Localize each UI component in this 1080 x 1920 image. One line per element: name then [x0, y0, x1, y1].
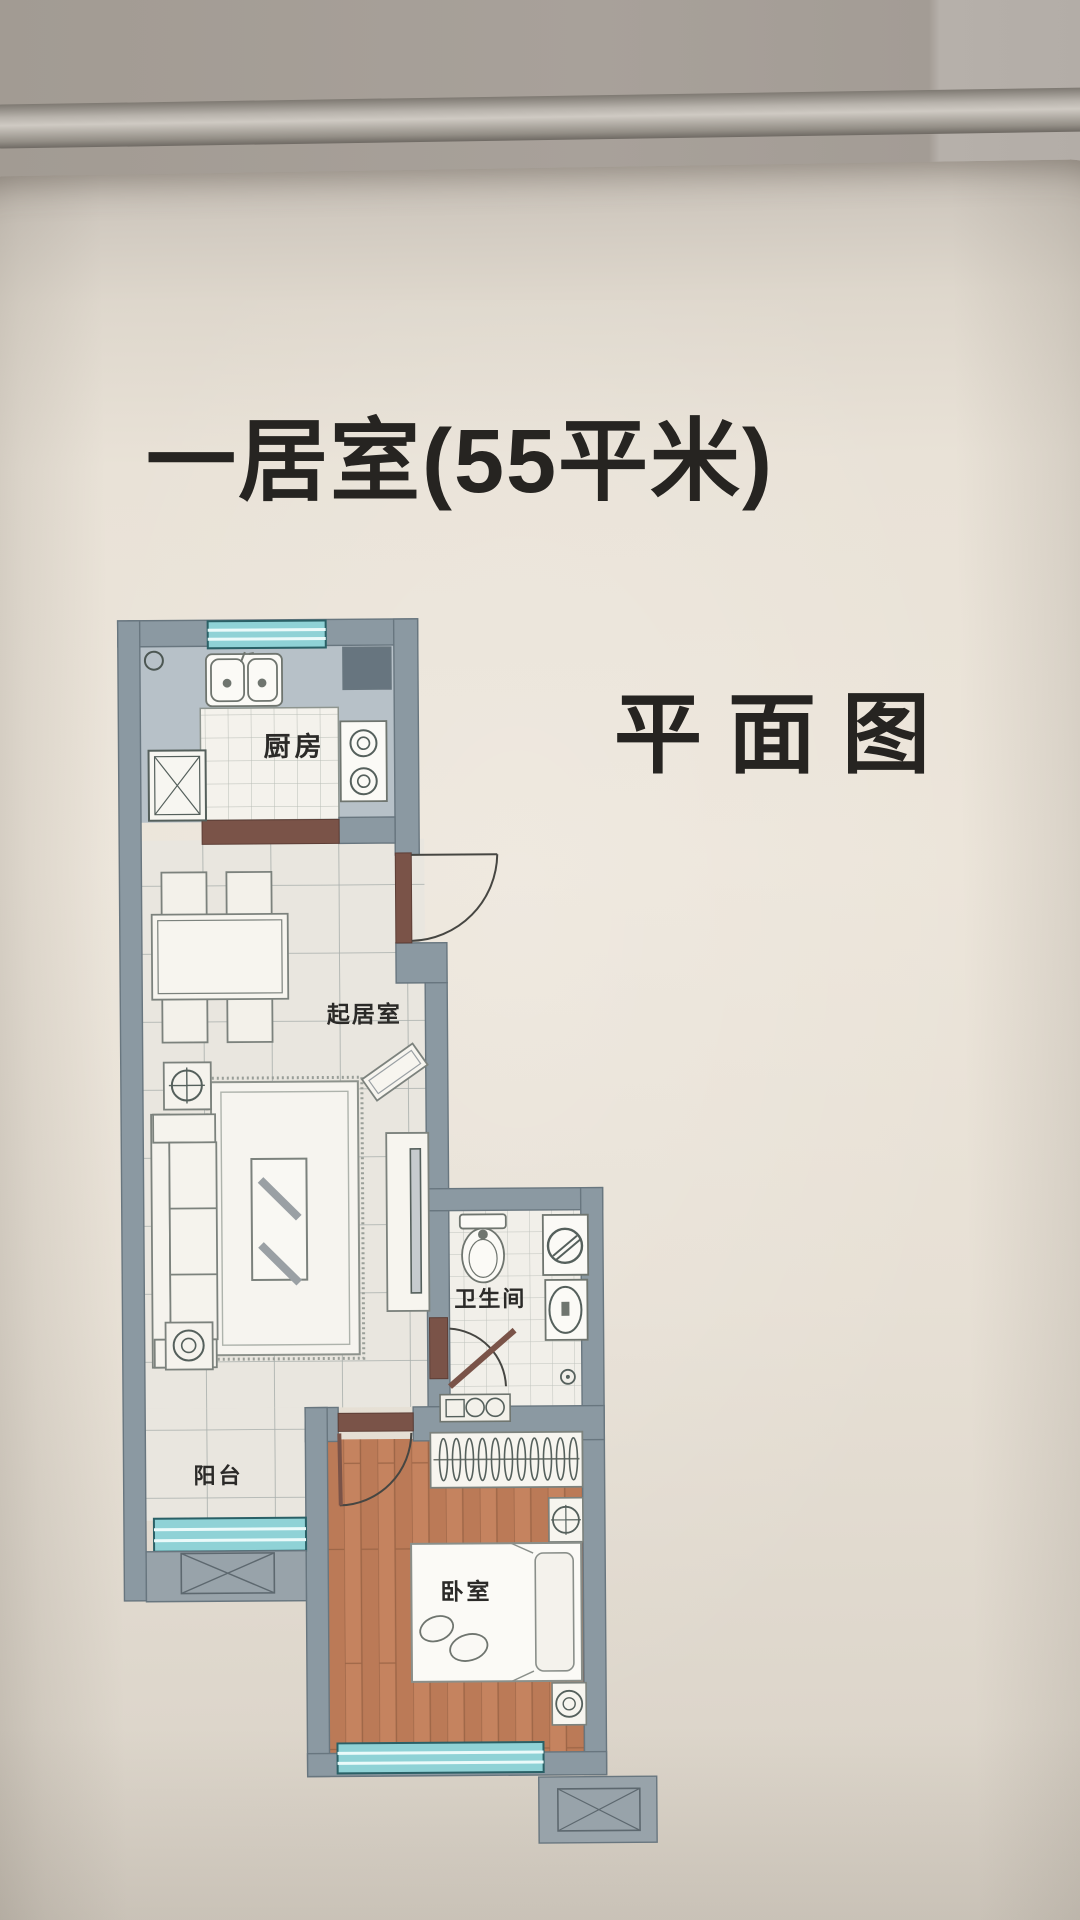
- wardrobe: [430, 1432, 582, 1488]
- floor-plan-drawing: 厨房 起居室 卫生间 阳台 卧室: [0, 0, 1080, 1920]
- balcony-ac-platform: [146, 1551, 306, 1602]
- shower-shelf: [440, 1394, 510, 1421]
- toilet: [460, 1214, 506, 1282]
- bathroom-label: 卫生间: [454, 1286, 526, 1312]
- tv-cabinet: [386, 1133, 429, 1311]
- kitchen-label: 厨房: [263, 731, 325, 761]
- balcony-label: 阳台: [193, 1463, 243, 1488]
- bed: [411, 1543, 582, 1682]
- bedroom-label: 卧室: [440, 1578, 492, 1604]
- kitchen-stove: [340, 721, 387, 801]
- side-table-lamp-bottom: [166, 1322, 213, 1369]
- kitchen-sink: [206, 652, 282, 707]
- washing-machine: [543, 1215, 588, 1275]
- kitchen-window: [208, 620, 326, 648]
- nightstand-bottom: [552, 1683, 586, 1725]
- bedroom-ac-platform: [539, 1776, 657, 1843]
- living-label: 起居室: [327, 1001, 402, 1028]
- side-table-lamp-top: [164, 1062, 211, 1109]
- coffee-table: [251, 1159, 307, 1283]
- bedroom-window: [337, 1742, 543, 1773]
- balcony-window: [154, 1518, 306, 1552]
- kitchen-shower-pan: [149, 750, 206, 820]
- photo-of-floorplan-banner: 一居室(55平米) 平面图: [0, 0, 1080, 1920]
- nightstand-top: [549, 1498, 583, 1542]
- bathroom-sink: [545, 1280, 587, 1340]
